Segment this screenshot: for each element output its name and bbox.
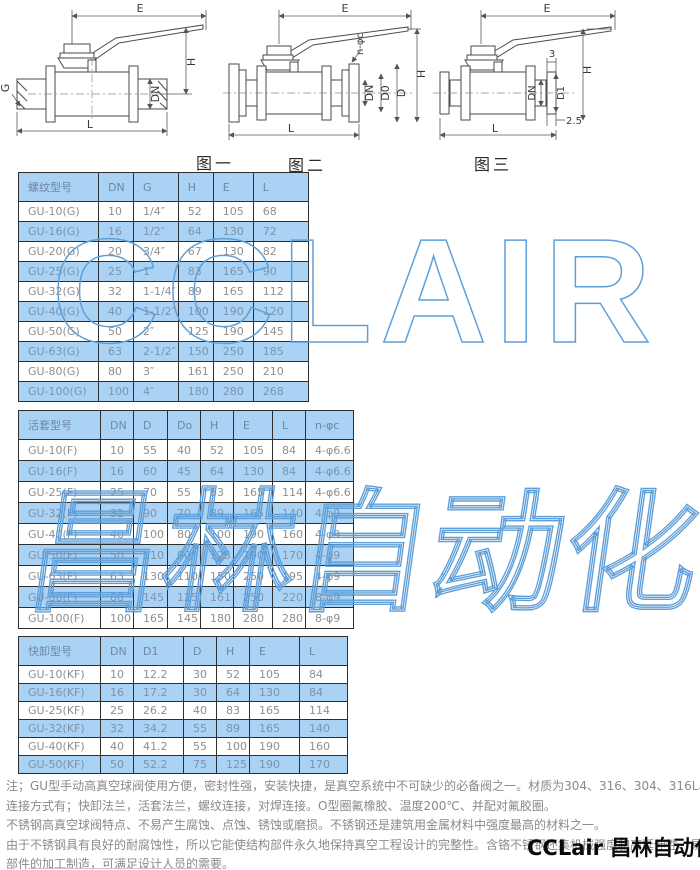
cell: 50	[101, 545, 134, 566]
cell: GU-25(F)	[19, 482, 101, 503]
table-row: GU-40(KF)4041.255100190160	[19, 738, 348, 756]
cell: 25	[101, 482, 134, 503]
cell: 250	[213, 342, 253, 362]
cell: 130	[250, 684, 300, 702]
cell: 83	[178, 262, 213, 282]
column-header: n-φc	[306, 411, 354, 440]
column-header: E	[213, 173, 253, 202]
cell: GU-63(G)	[19, 342, 99, 362]
cell: 100	[217, 738, 250, 756]
cell: 145	[253, 322, 308, 342]
cell: 30	[184, 684, 217, 702]
cell: 190	[234, 524, 273, 545]
table-row: GU-63(G)632-1/2″150250185	[19, 342, 309, 362]
table-row: GU-25(F)257055831651144-φ6.6	[19, 482, 354, 503]
table-row: GU-50(G)502″125190145	[19, 322, 309, 342]
cell: 90	[253, 262, 308, 282]
cell: 145	[134, 587, 168, 608]
cell: 130	[234, 461, 273, 482]
cell: 4-φ9	[306, 524, 354, 545]
table-row: GU-63(F)631301101502501954-φ9	[19, 566, 354, 587]
cell: 190	[250, 756, 300, 774]
cell: 4-φ6.6	[306, 482, 354, 503]
table-row: GU-80(G)803″161250210	[19, 362, 309, 382]
cell: 190	[213, 322, 253, 342]
cell: 32	[101, 720, 134, 738]
cell: 89	[201, 503, 234, 524]
cell: 2″	[134, 322, 179, 342]
cell: GU-40(KF)	[19, 738, 101, 756]
dim-label-E: E	[137, 2, 144, 15]
table-row: GU-20(G)203/4″6713082	[19, 242, 309, 262]
column-header: L	[253, 173, 308, 202]
cell: 3/4″	[134, 242, 179, 262]
table-row: GU-40(G)401-1/2″100190120	[19, 302, 309, 322]
cell: 180	[178, 382, 213, 402]
handle	[483, 27, 611, 63]
cell: 12.2	[134, 666, 184, 684]
dim-label-H: H	[185, 58, 198, 66]
dim-label-E: E	[342, 2, 349, 15]
handle	[279, 27, 408, 63]
cell: 8-φ9	[306, 608, 354, 629]
cell: 160	[273, 524, 306, 545]
table-row: GU-10(F)10554052105844-φ6.6	[19, 440, 354, 461]
cell: 8-φ9	[306, 587, 354, 608]
clamp-valve-diagram: E 3 DN D1 2.5	[425, 0, 660, 148]
cell: GU-25(G)	[19, 262, 99, 282]
cell: 52	[178, 202, 213, 222]
dim-label-H: H	[581, 66, 594, 74]
cell: 45	[168, 461, 201, 482]
cell: 4-φ9	[306, 545, 354, 566]
cell: 165	[250, 720, 300, 738]
dim-label-DN: DN	[363, 85, 376, 102]
cell: 1/4″	[134, 202, 179, 222]
flange-spec-table: 活套型号DNDDoHELn-φcGU-10(F)10554052105844-φ…	[18, 410, 354, 629]
cell: GU-16(F)	[19, 461, 101, 482]
cell: 210	[253, 362, 308, 382]
cell: GU-16(G)	[19, 222, 99, 242]
cell: 165	[234, 503, 273, 524]
cell: 80	[99, 362, 134, 382]
table-row: GU-80(F)801451251612502208-φ9	[19, 587, 354, 608]
table-row: GU-100(G)1004″180280268	[19, 382, 309, 402]
cell: GU-40(F)	[19, 524, 101, 545]
table-row: GU-40(F)40100801001901604-φ9	[19, 524, 354, 545]
cell: 68	[253, 202, 308, 222]
column-header: DN	[101, 637, 134, 666]
column-header: E	[250, 637, 300, 666]
cell: 165	[213, 282, 253, 302]
header-row: 螺纹型号DNGHEL	[19, 173, 309, 202]
cell: 2-1/2″	[134, 342, 179, 362]
cell: 220	[273, 587, 306, 608]
cell: 1″	[134, 262, 179, 282]
cell: 52.2	[134, 756, 184, 774]
cell: GU-16(KF)	[19, 684, 101, 702]
cell: 55	[184, 738, 217, 756]
table-row: GU-25(KF)2526.24083165114	[19, 702, 348, 720]
cell: 16	[101, 684, 134, 702]
cell: GU-32(KF)	[19, 720, 101, 738]
cell: 100	[178, 302, 213, 322]
figure-3-caption: 图三	[474, 151, 512, 175]
table-row: GU-16(G)161/2″6413072	[19, 222, 309, 242]
table-row: GU-50(KF)5052.275125190170	[19, 756, 348, 774]
cell: 125	[217, 756, 250, 774]
cell: 180	[201, 608, 234, 629]
cell: 60	[134, 461, 168, 482]
cell: 1-1/2″	[134, 302, 179, 322]
cell: 165	[234, 482, 273, 503]
cell: 55	[134, 440, 168, 461]
cell: 84	[273, 461, 306, 482]
cell: 140	[273, 503, 306, 524]
cell: 190	[234, 545, 273, 566]
cell: 145	[168, 608, 201, 629]
cell: GU-50(F)	[19, 545, 101, 566]
dim-label-L: L	[288, 122, 295, 135]
column-header: 活套型号	[19, 411, 101, 440]
dim-label-D: D	[395, 89, 408, 97]
note-line: 连接方式有；快卸法兰，活套法兰，螺纹连接，对焊连接。O型圈氟橡胶、温度200℃、…	[6, 797, 700, 817]
cell: 26.2	[134, 702, 184, 720]
cell: GU-25(KF)	[19, 702, 101, 720]
cell: 150	[178, 342, 213, 362]
dim-label-L: L	[87, 118, 94, 131]
cell: 105	[250, 666, 300, 684]
cell: 40	[101, 738, 134, 756]
cell: 105	[213, 202, 253, 222]
cell: 100	[201, 524, 234, 545]
cell: 114	[300, 702, 348, 720]
cell: 130	[213, 222, 253, 242]
cell: GU-10(KF)	[19, 666, 101, 684]
column-header: 快卸型号	[19, 637, 101, 666]
cell: 30	[184, 666, 217, 684]
cell: 161	[201, 587, 234, 608]
dim-label-DN: DN	[527, 85, 538, 100]
cell: 63	[99, 342, 134, 362]
cell: 280	[273, 608, 306, 629]
cell: 50	[99, 322, 134, 342]
table-row: GU-32(G)321-1/4″89165112	[19, 282, 309, 302]
cell: 52	[201, 440, 234, 461]
cell: 4-φ6.6	[306, 461, 354, 482]
table-row: GU-25(G)251″8316590	[19, 262, 309, 282]
cell: 170	[273, 545, 306, 566]
cell: 16	[101, 461, 134, 482]
dim-label-n-phi-c: n-φc	[355, 33, 366, 55]
table-row: GU-32(KF)3234.25589165140	[19, 720, 348, 738]
column-header: L	[273, 411, 306, 440]
column-header: L	[300, 637, 348, 666]
cell: 120	[253, 302, 308, 322]
cropped-table-edge	[28, 868, 210, 869]
cell: 190	[213, 302, 253, 322]
cell: 25	[99, 262, 134, 282]
cell: 67	[178, 242, 213, 262]
dim-label-E: E	[544, 2, 551, 15]
cell: 80	[101, 587, 134, 608]
cell: 55	[184, 720, 217, 738]
cell: GU-100(G)	[19, 382, 99, 402]
column-header: DN	[99, 173, 134, 202]
cell: 75	[184, 756, 217, 774]
threaded-valve-diagram: E G DN H L	[0, 0, 220, 148]
column-header: H	[217, 637, 250, 666]
cell: 165	[213, 262, 253, 282]
cell: 100	[134, 524, 168, 545]
cell: GU-100(F)	[19, 608, 101, 629]
cell: GU-50(KF)	[19, 756, 101, 774]
cell: 10	[101, 666, 134, 684]
table-row: GU-32(F)329070891651404-φ9	[19, 503, 354, 524]
cell: 52	[217, 666, 250, 684]
dim-label-D1: D1	[556, 86, 567, 100]
cell: GU-10(G)	[19, 202, 99, 222]
cell: GU-10(F)	[19, 440, 101, 461]
cell: GU-20(G)	[19, 242, 99, 262]
catalog-page: E G DN H L	[0, 0, 700, 870]
cell: 55	[168, 482, 201, 503]
header-row: 活套型号DNDDoHELn-φc	[19, 411, 354, 440]
cell: 100	[99, 382, 134, 402]
cell: 25	[101, 702, 134, 720]
cell: 130	[134, 566, 168, 587]
cell: 72	[253, 222, 308, 242]
cell: 64	[217, 684, 250, 702]
cell: 110	[168, 566, 201, 587]
cell: 130	[213, 242, 253, 262]
column-header: G	[134, 173, 179, 202]
cell: 64	[201, 461, 234, 482]
column-header: D	[134, 411, 168, 440]
cell: 4-φ9	[306, 503, 354, 524]
cell: 70	[168, 503, 201, 524]
cell: 250	[213, 362, 253, 382]
cell: 4-φ6.6	[306, 440, 354, 461]
cell: 17.2	[134, 684, 184, 702]
cell: 250	[234, 566, 273, 587]
cell: 110	[134, 545, 168, 566]
cell: 280	[234, 608, 273, 629]
cell: 250	[234, 587, 273, 608]
column-header: H	[178, 173, 213, 202]
cell: 89	[178, 282, 213, 302]
cell: 63	[101, 566, 134, 587]
cell: GU-80(F)	[19, 587, 101, 608]
cell: GU-32(G)	[19, 282, 99, 302]
cell: 150	[201, 566, 234, 587]
cell: 90	[134, 503, 168, 524]
column-header: DN	[101, 411, 134, 440]
cell: 105	[234, 440, 273, 461]
cell: GU-40(G)	[19, 302, 99, 322]
cell: 34.2	[134, 720, 184, 738]
dim-label-D0: D0	[379, 85, 392, 100]
cell: 50	[101, 756, 134, 774]
cell: 280	[213, 382, 253, 402]
header-row: 快卸型号DND1DHEL	[19, 637, 348, 666]
cell: 161	[178, 362, 213, 382]
cell: 4-φ9	[306, 566, 354, 587]
cell: 4″	[134, 382, 179, 402]
cell: GU-50(G)	[19, 322, 99, 342]
brand-label: CCLair 昌林自动化	[527, 832, 700, 862]
column-header: 螺纹型号	[19, 173, 99, 202]
column-header: D1	[134, 637, 184, 666]
note-line: 注；GU型手动高真空球阀使用方便，密封性强，安装快捷，是真空系统中不可缺少的必备…	[6, 777, 700, 797]
cell: 41.2	[134, 738, 184, 756]
cell: 140	[300, 720, 348, 738]
dim-label-2-5: 2.5	[566, 116, 582, 127]
cell: 165	[134, 608, 168, 629]
cell: GU-63(F)	[19, 566, 101, 587]
cell: 112	[253, 282, 308, 302]
figure-1-caption: 图一	[196, 150, 234, 174]
column-header: H	[201, 411, 234, 440]
cell: 40	[168, 440, 201, 461]
cell: 20	[99, 242, 134, 262]
cell: 40	[101, 524, 134, 545]
cell: 90	[168, 545, 201, 566]
cell: 185	[253, 342, 308, 362]
cell: GU-32(F)	[19, 503, 101, 524]
cell: 83	[201, 482, 234, 503]
cell: 32	[99, 282, 134, 302]
cell: 16	[99, 222, 134, 242]
dim-label-G: G	[0, 84, 12, 93]
cell: 10	[101, 440, 134, 461]
cell: 84	[300, 666, 348, 684]
cell: 40	[99, 302, 134, 322]
cell: 3″	[134, 362, 179, 382]
cell: 32	[101, 503, 134, 524]
table-row: GU-100(F)1001651451802802808-φ9	[19, 608, 354, 629]
clamp-spec-table: 快卸型号DND1DHELGU-10(KF)1012.2305210584GU-1…	[18, 636, 348, 774]
cell: 84	[300, 684, 348, 702]
cell: 125	[201, 545, 234, 566]
table-row: GU-10(KF)1012.2305210584	[19, 666, 348, 684]
flanged-valve-diagram: E n-φc DN D0 D H	[215, 0, 430, 148]
cell: 84	[273, 440, 306, 461]
cell: 165	[250, 702, 300, 720]
table-row: GU-50(F)50110901251901704-φ9	[19, 545, 354, 566]
cell: 80	[168, 524, 201, 545]
table-row: GU-16(KF)1617.2306413084	[19, 684, 348, 702]
column-header: Do	[168, 411, 201, 440]
cell: GU-80(G)	[19, 362, 99, 382]
cell: 100	[101, 608, 134, 629]
cell: 70	[134, 482, 168, 503]
cell: 125	[178, 322, 213, 342]
cell: 89	[217, 720, 250, 738]
threaded-spec-table: 螺纹型号DNGHELGU-10(G)101/4″5210568GU-16(G)1…	[18, 172, 309, 402]
cell: 83	[217, 702, 250, 720]
dim-label-L: L	[492, 122, 499, 135]
dim-label-3: 3	[549, 49, 555, 60]
valve-diagrams: E G DN H L	[0, 0, 700, 172]
cell: 1-1/4″	[134, 282, 179, 302]
cell: 268	[253, 382, 308, 402]
cell: 64	[178, 222, 213, 242]
cell: 10	[99, 202, 134, 222]
cell: 82	[253, 242, 308, 262]
table-row: GU-10(G)101/4″5210568	[19, 202, 309, 222]
cell: 170	[300, 756, 348, 774]
cell: 195	[273, 566, 306, 587]
table-row: GU-16(F)16604564130844-φ6.6	[19, 461, 354, 482]
cell: 1/2″	[134, 222, 179, 242]
column-header: D	[184, 637, 217, 666]
column-header: E	[234, 411, 273, 440]
cell: 125	[168, 587, 201, 608]
cell: 40	[184, 702, 217, 720]
cell: 160	[300, 738, 348, 756]
cell: 190	[250, 738, 300, 756]
cell: 114	[273, 482, 306, 503]
